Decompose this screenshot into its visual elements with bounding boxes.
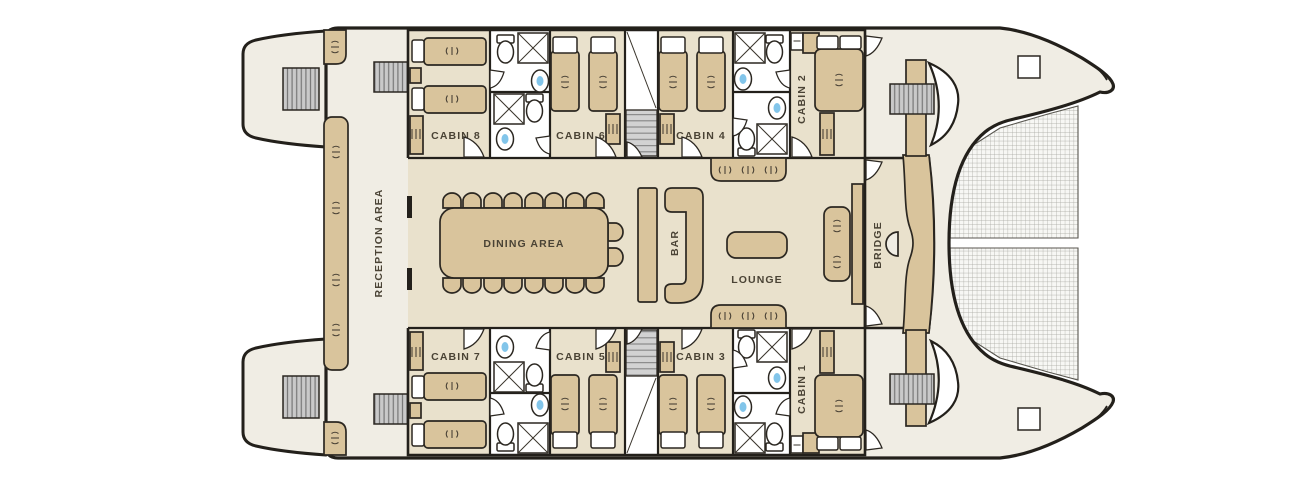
- toilet: [766, 35, 783, 63]
- dining-chair: [566, 193, 584, 208]
- bed-pillow: [591, 432, 615, 448]
- toilet: [497, 35, 514, 63]
- bed-headboard: [412, 88, 424, 110]
- bed-pillow: [817, 437, 838, 450]
- dining-chair: [443, 278, 461, 293]
- stern-stairs-bottom: [283, 376, 319, 418]
- deck-plan-page: RECEPTION AREA CABIN 8: [0, 0, 1310, 486]
- bed-pillow: [840, 437, 861, 450]
- dining-chair: [443, 193, 461, 208]
- cabin-1-label: CABIN 1: [796, 364, 808, 414]
- sink: [497, 128, 514, 150]
- shower: [494, 362, 524, 392]
- toilet: [526, 94, 543, 122]
- bed-pillow: [699, 432, 723, 448]
- bed: [659, 51, 687, 111]
- shower: [735, 423, 765, 453]
- cabin-8: CABIN 8: [410, 38, 486, 157]
- dining-chair: [484, 193, 502, 208]
- dining-area: DINING AREA: [440, 193, 623, 293]
- toilet: [497, 423, 514, 451]
- bed: [551, 51, 579, 111]
- bar-label: BAR: [669, 230, 681, 256]
- dining-chair: [586, 193, 604, 208]
- bed-pillow: [661, 432, 685, 448]
- sink: [532, 70, 549, 92]
- dining-chair: [566, 278, 584, 293]
- deck-plan: RECEPTION AREA CABIN 8: [0, 0, 1310, 486]
- sink: [532, 394, 549, 416]
- dining-chair: [463, 278, 481, 293]
- bed-pillow: [553, 432, 577, 448]
- cabin-2-label: CABIN 2: [796, 74, 808, 124]
- bed: [697, 51, 725, 111]
- dining-chair: [504, 278, 522, 293]
- dining-chair: [545, 193, 563, 208]
- dining-chair: [545, 278, 563, 293]
- deck-hatch-bottom: [1018, 408, 1040, 430]
- sink: [769, 367, 786, 389]
- shower: [494, 94, 524, 124]
- bridge: BRIDGE: [865, 155, 934, 333]
- bridge-label: BRIDGE: [872, 221, 884, 268]
- lounge-label: LOUNGE: [731, 274, 783, 286]
- bed-pillow: [699, 37, 723, 53]
- bed: [589, 51, 617, 111]
- nightstand: [410, 68, 421, 83]
- toilet: [526, 364, 543, 392]
- bed-pillow: [591, 37, 615, 53]
- dining-chair: [586, 278, 604, 293]
- dining-chair: [504, 193, 522, 208]
- deck-hatch-top: [1018, 56, 1040, 78]
- deck-stairs-bottom: [890, 374, 934, 404]
- corridor-stairs-bottom: [374, 394, 408, 424]
- cabin-5-label: CABIN 5: [556, 351, 606, 363]
- shower: [735, 33, 765, 63]
- bed: [424, 373, 486, 400]
- cabin-8-label: CABIN 8: [431, 130, 481, 142]
- cabin-3-label: CABIN 3: [676, 351, 726, 363]
- bed-headboard: [412, 424, 424, 446]
- dining-chair: [484, 278, 502, 293]
- dining-chair: [525, 193, 543, 208]
- shower: [757, 124, 787, 154]
- sink: [735, 68, 752, 90]
- bed: [424, 38, 486, 65]
- nightstand: [410, 403, 421, 418]
- dining-area-label: DINING AREA: [483, 238, 564, 250]
- lounge-bench: [824, 207, 850, 281]
- wall-stub: [407, 196, 412, 218]
- deck-stairs-top: [890, 84, 934, 114]
- stern-stairs-top: [283, 68, 319, 110]
- corridor-stairs-top: [374, 62, 408, 92]
- side-console: [852, 184, 863, 304]
- bed: [424, 421, 486, 448]
- bed-pillow: [553, 37, 577, 53]
- bed: [697, 375, 725, 435]
- reception-area-label: RECEPTION AREA: [373, 189, 385, 298]
- bed-headboard: [412, 376, 424, 398]
- shower: [757, 332, 787, 362]
- dining-chair: [525, 278, 543, 293]
- bed: [551, 375, 579, 435]
- reception-bench-long: [324, 117, 348, 370]
- toilet: [766, 423, 783, 451]
- bed: [424, 86, 486, 113]
- bed-pillow: [817, 36, 838, 49]
- dining-chair: [463, 193, 481, 208]
- cabin-7-label: CABIN 7: [431, 351, 481, 363]
- shower: [518, 423, 548, 453]
- wall-stub: [407, 268, 412, 290]
- bed: [659, 375, 687, 435]
- bed-headboard: [412, 40, 424, 62]
- stern-platforms: [243, 31, 326, 455]
- bed-pillow: [661, 37, 685, 53]
- sink: [497, 336, 514, 358]
- bar: BAR: [638, 188, 703, 303]
- sink: [735, 396, 752, 418]
- bed: [589, 375, 617, 435]
- bed-pillow: [840, 36, 861, 49]
- bar-counter: [638, 188, 657, 302]
- shower: [518, 33, 548, 63]
- coffee-table: [727, 232, 787, 258]
- dining-chair: [608, 248, 623, 266]
- sink: [769, 97, 786, 119]
- dining-chair: [608, 223, 623, 241]
